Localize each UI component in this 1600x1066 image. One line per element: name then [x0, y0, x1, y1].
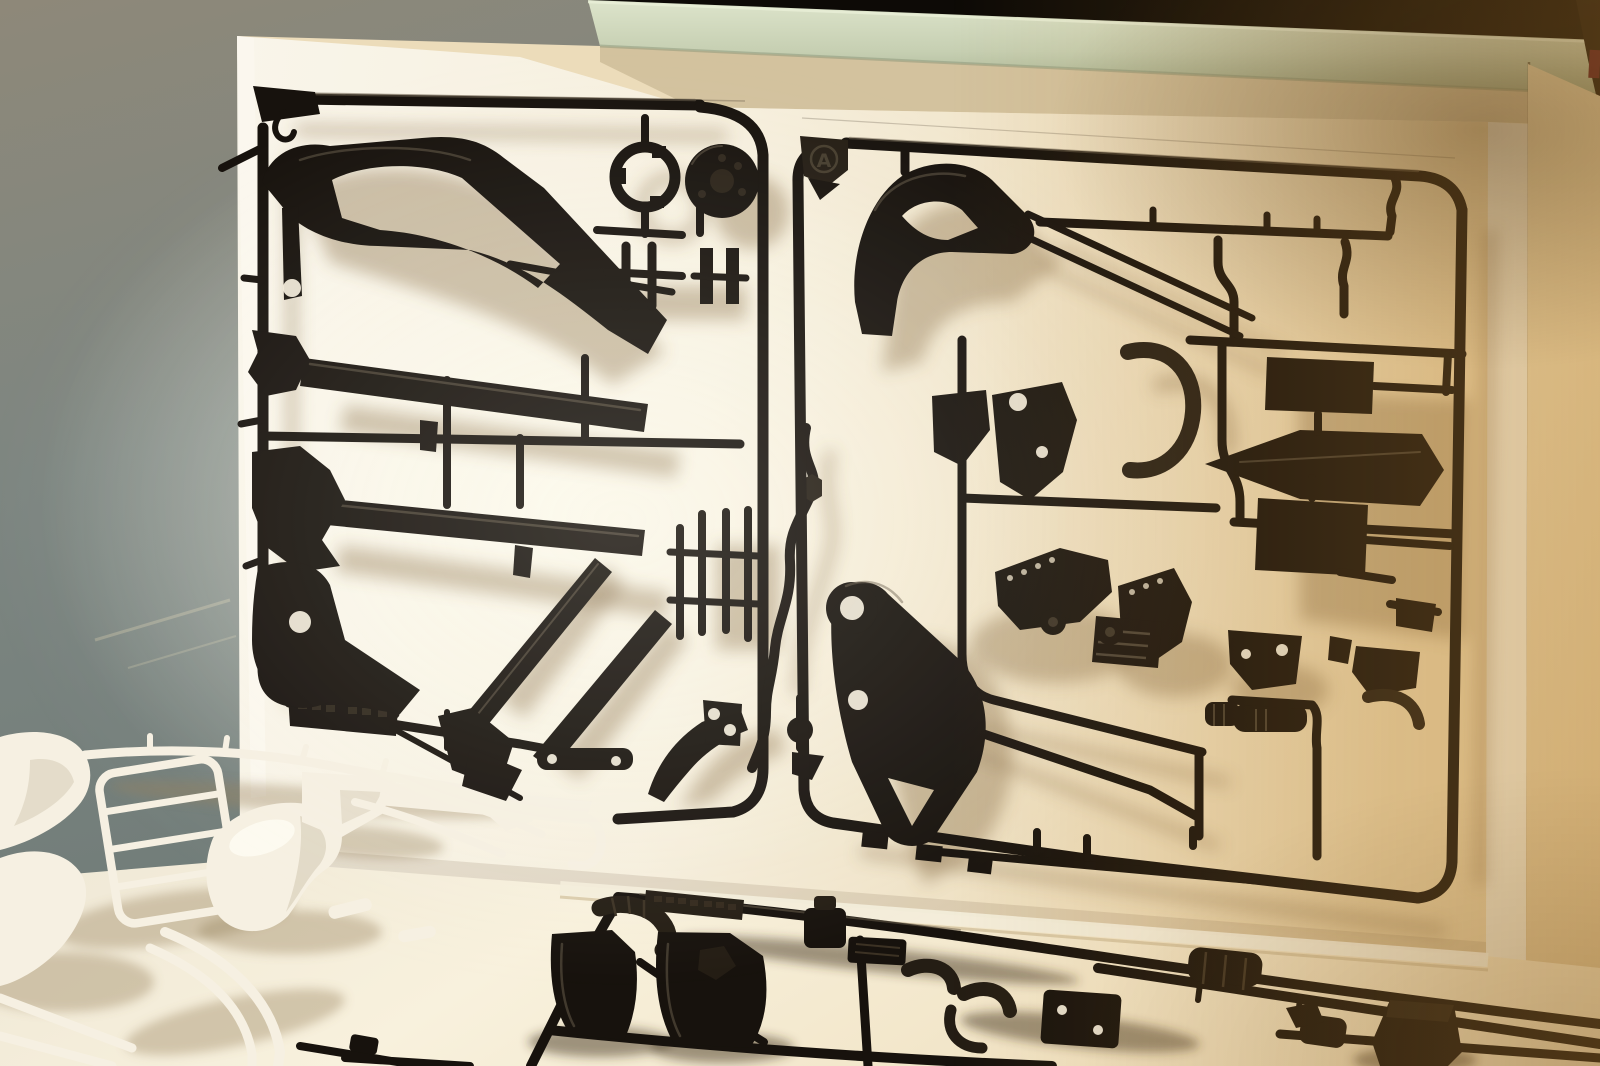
photo-canvas: A — [0, 0, 1600, 1066]
scene-photo: A — [0, 0, 1600, 1066]
